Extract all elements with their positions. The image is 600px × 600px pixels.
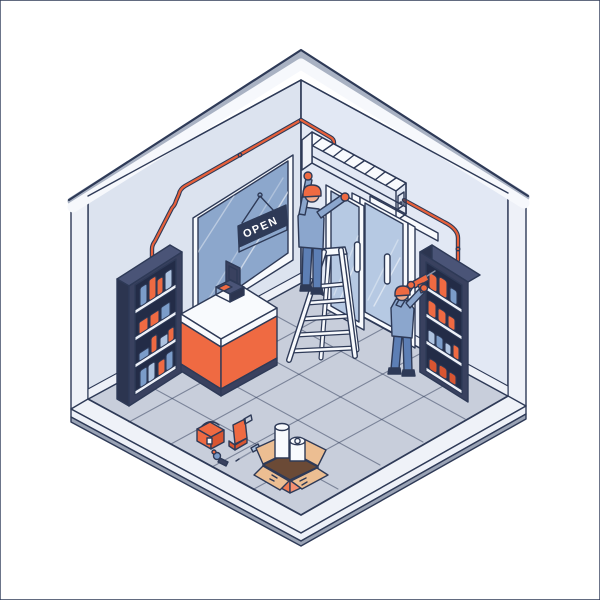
worker-hard-hat: [303, 185, 321, 197]
right-wall-end-face: [508, 193, 526, 406]
worker-boot: [388, 368, 401, 374]
paper-roll: [275, 427, 289, 458]
worker-glove: [408, 282, 415, 289]
drill-bit-piece: [212, 450, 216, 454]
door-handle-right: [385, 254, 391, 284]
worker-leg: [313, 247, 322, 289]
paper-roll-top: [275, 424, 289, 431]
toolbox-clasp: [207, 438, 212, 444]
worker-glove: [304, 172, 312, 180]
worker-leg: [403, 337, 412, 371]
worker-boot: [311, 288, 323, 294]
left-wall-end-face: [71, 196, 88, 409]
worker-leg: [302, 247, 312, 286]
worker-glove: [341, 193, 349, 201]
door-handle-left: [355, 242, 361, 272]
worker-glove: [421, 285, 428, 292]
shelf-side-face: [117, 279, 129, 406]
worker-boot: [402, 370, 415, 376]
shop-ac-installation-illustration: OPEN: [0, 0, 600, 600]
worker-boot: [300, 285, 312, 291]
